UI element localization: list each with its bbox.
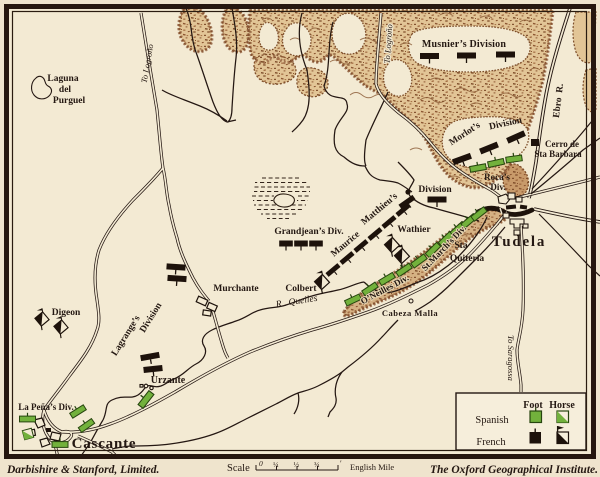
svg-text:′: ′	[340, 459, 342, 468]
svg-text:Laguna: Laguna	[47, 74, 78, 84]
svg-text:La Peña’s Div.: La Peña’s Div.	[18, 402, 73, 412]
svg-text:Cerro de: Cerro de	[545, 139, 579, 149]
svg-text:Cabeza Malla: Cabeza Malla	[382, 308, 439, 318]
svg-text:Foot: Foot	[523, 400, 543, 411]
svg-text:Cascante: Cascante	[72, 436, 137, 452]
svg-text:Purguel: Purguel	[53, 96, 86, 106]
svg-text:Sta: Sta	[454, 241, 467, 251]
svg-text:Roca’s: Roca’s	[484, 172, 510, 182]
svg-text:Horse: Horse	[549, 400, 575, 411]
svg-text:The Oxford Geographical Instit: The Oxford Geographical Institute.	[430, 464, 598, 476]
svg-text:Spanish: Spanish	[475, 415, 509, 426]
svg-text:Quiteria: Quiteria	[450, 254, 485, 264]
svg-text:Murchante: Murchante	[213, 284, 258, 294]
svg-text:French: French	[476, 437, 506, 448]
svg-text:0: 0	[259, 459, 263, 468]
svg-text:Darbishire & Stanford, Limited: Darbishire & Stanford, Limited.	[6, 464, 159, 476]
svg-text:Wathier: Wathier	[397, 225, 431, 235]
svg-text:Division: Division	[418, 185, 452, 195]
svg-text:Sta Barbara: Sta Barbara	[534, 149, 582, 159]
svg-text:¼: ¼	[273, 460, 279, 469]
svg-text:Grandjean’s Div.: Grandjean’s Div.	[274, 227, 343, 237]
svg-text:Digeon: Digeon	[52, 308, 81, 318]
svg-text:¾: ¾	[314, 460, 320, 469]
svg-text:Musnier’s Division: Musnier’s Division	[422, 39, 506, 50]
svg-text:½: ½	[294, 460, 300, 469]
svg-text:Tudela: Tudela	[492, 234, 546, 250]
svg-text:Urzante: Urzante	[151, 375, 186, 386]
svg-text:English Mile: English Mile	[350, 462, 394, 472]
svg-text:Colbert: Colbert	[285, 284, 317, 294]
svg-text:Scale: Scale	[227, 463, 250, 474]
svg-text:Div.: Div.	[490, 182, 505, 192]
svg-text:To Saragossa: To Saragossa	[506, 335, 516, 381]
svg-text:del: del	[59, 85, 72, 95]
